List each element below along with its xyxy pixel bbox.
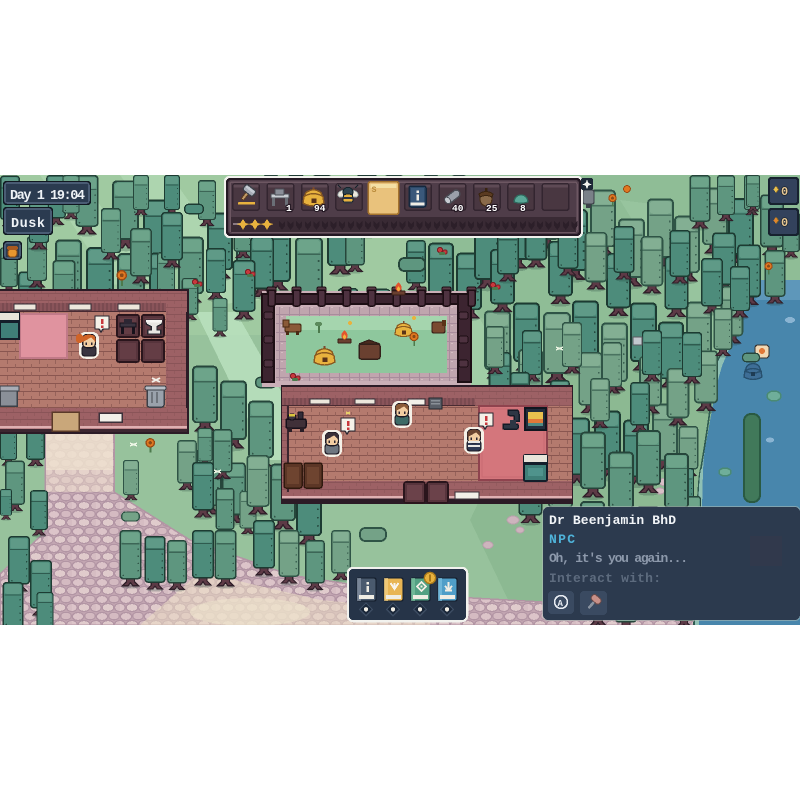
svg-text:25: 25 — [486, 203, 498, 214]
svg-text:Interact with:: Interact with: — [549, 571, 661, 586]
svg-text:A: A — [558, 599, 564, 609]
svg-text:1: 1 — [286, 203, 292, 214]
svg-text:0: 0 — [781, 185, 788, 199]
svg-text:NPC: NPC — [549, 532, 575, 547]
svg-text:Dusk: Dusk — [11, 217, 45, 232]
svg-text:Oh, it's you again...: Oh, it's you again... — [549, 551, 688, 566]
svg-text:Dr Beenjamin BhD: Dr Beenjamin BhD — [549, 513, 676, 528]
svg-text:40: 40 — [452, 203, 464, 214]
svg-text:S: S — [372, 186, 377, 195]
svg-text:94: 94 — [314, 203, 326, 214]
svg-text:0: 0 — [781, 216, 788, 230]
svg-text:Day 1 19:04: Day 1 19:04 — [10, 189, 85, 204]
svg-text:8: 8 — [520, 203, 526, 214]
